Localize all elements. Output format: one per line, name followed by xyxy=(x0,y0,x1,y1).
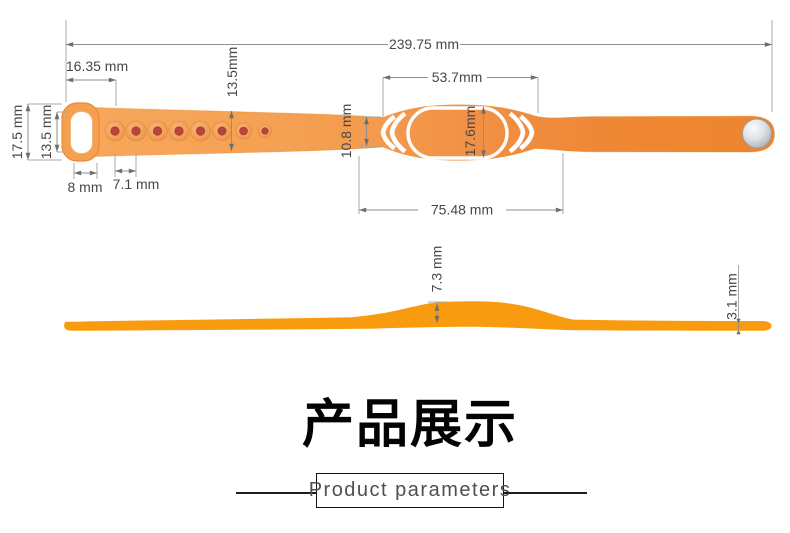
band-hole xyxy=(259,125,272,138)
divider-line-left xyxy=(236,492,316,494)
dim-label-hole-pitch: 7.1 mm xyxy=(113,176,160,192)
band-hole xyxy=(191,121,211,141)
metal-snap-button xyxy=(743,119,772,148)
band-hole xyxy=(236,123,252,139)
dim-label-clasp-width: 8 mm xyxy=(68,179,103,195)
band-hole xyxy=(148,121,168,141)
dim-clasp-width: 8 mm xyxy=(68,163,103,195)
dim-label-buckle-offset: 16.35 mm xyxy=(66,58,128,74)
dim-label-face-width: 17.6mm xyxy=(462,106,478,157)
dim-total-length: 239.75 mm xyxy=(66,20,772,112)
band-hole xyxy=(213,122,232,141)
dim-label-clasp-outer-height: 17.5 mm xyxy=(9,105,25,159)
wristband-dimension-diagram: 239.75 mm 16.35 mm 13.5mm 17.5 mm 13.5 m… xyxy=(0,0,790,395)
product-dimension-page: 239.75 mm 16.35 mm 13.5mm 17.5 mm 13.5 m… xyxy=(0,0,790,533)
section-heading-cn: 产品展示 xyxy=(302,396,518,456)
band-hole xyxy=(105,121,125,141)
band-hole xyxy=(126,121,146,141)
product-parameters-label: Product parameters xyxy=(309,479,512,502)
dim-buckle-offset: 16.35 mm xyxy=(66,58,128,106)
dim-clasp-outer-height: 17.5 mm xyxy=(9,104,62,160)
dim-label-face-length: 53.7mm xyxy=(432,69,483,85)
dim-face-span: 75.48 mm xyxy=(359,153,563,218)
dim-label-clasp-inner-height: 13.5 mm xyxy=(38,105,54,159)
dim-label-band-width: 13.5mm xyxy=(224,47,240,98)
dim-label-face-span: 75.48 mm xyxy=(431,202,493,218)
wristband-side-view xyxy=(64,301,771,331)
dim-label-neck-width: 10.8 mm xyxy=(338,104,354,158)
divider-line-right xyxy=(504,492,587,494)
dim-hole-pitch: 7.1 mm xyxy=(113,153,160,192)
dim-label-bump-thickness: 7.3 mm xyxy=(429,246,445,293)
wristband-top-view xyxy=(62,103,775,161)
buckle-hole xyxy=(71,112,93,154)
dim-label-band-thickness: 3.1 mm xyxy=(724,273,740,320)
band-hole xyxy=(169,121,189,141)
product-parameters-box: Product parameters xyxy=(316,473,504,508)
dim-label-total-length: 239.75 mm xyxy=(389,36,459,52)
